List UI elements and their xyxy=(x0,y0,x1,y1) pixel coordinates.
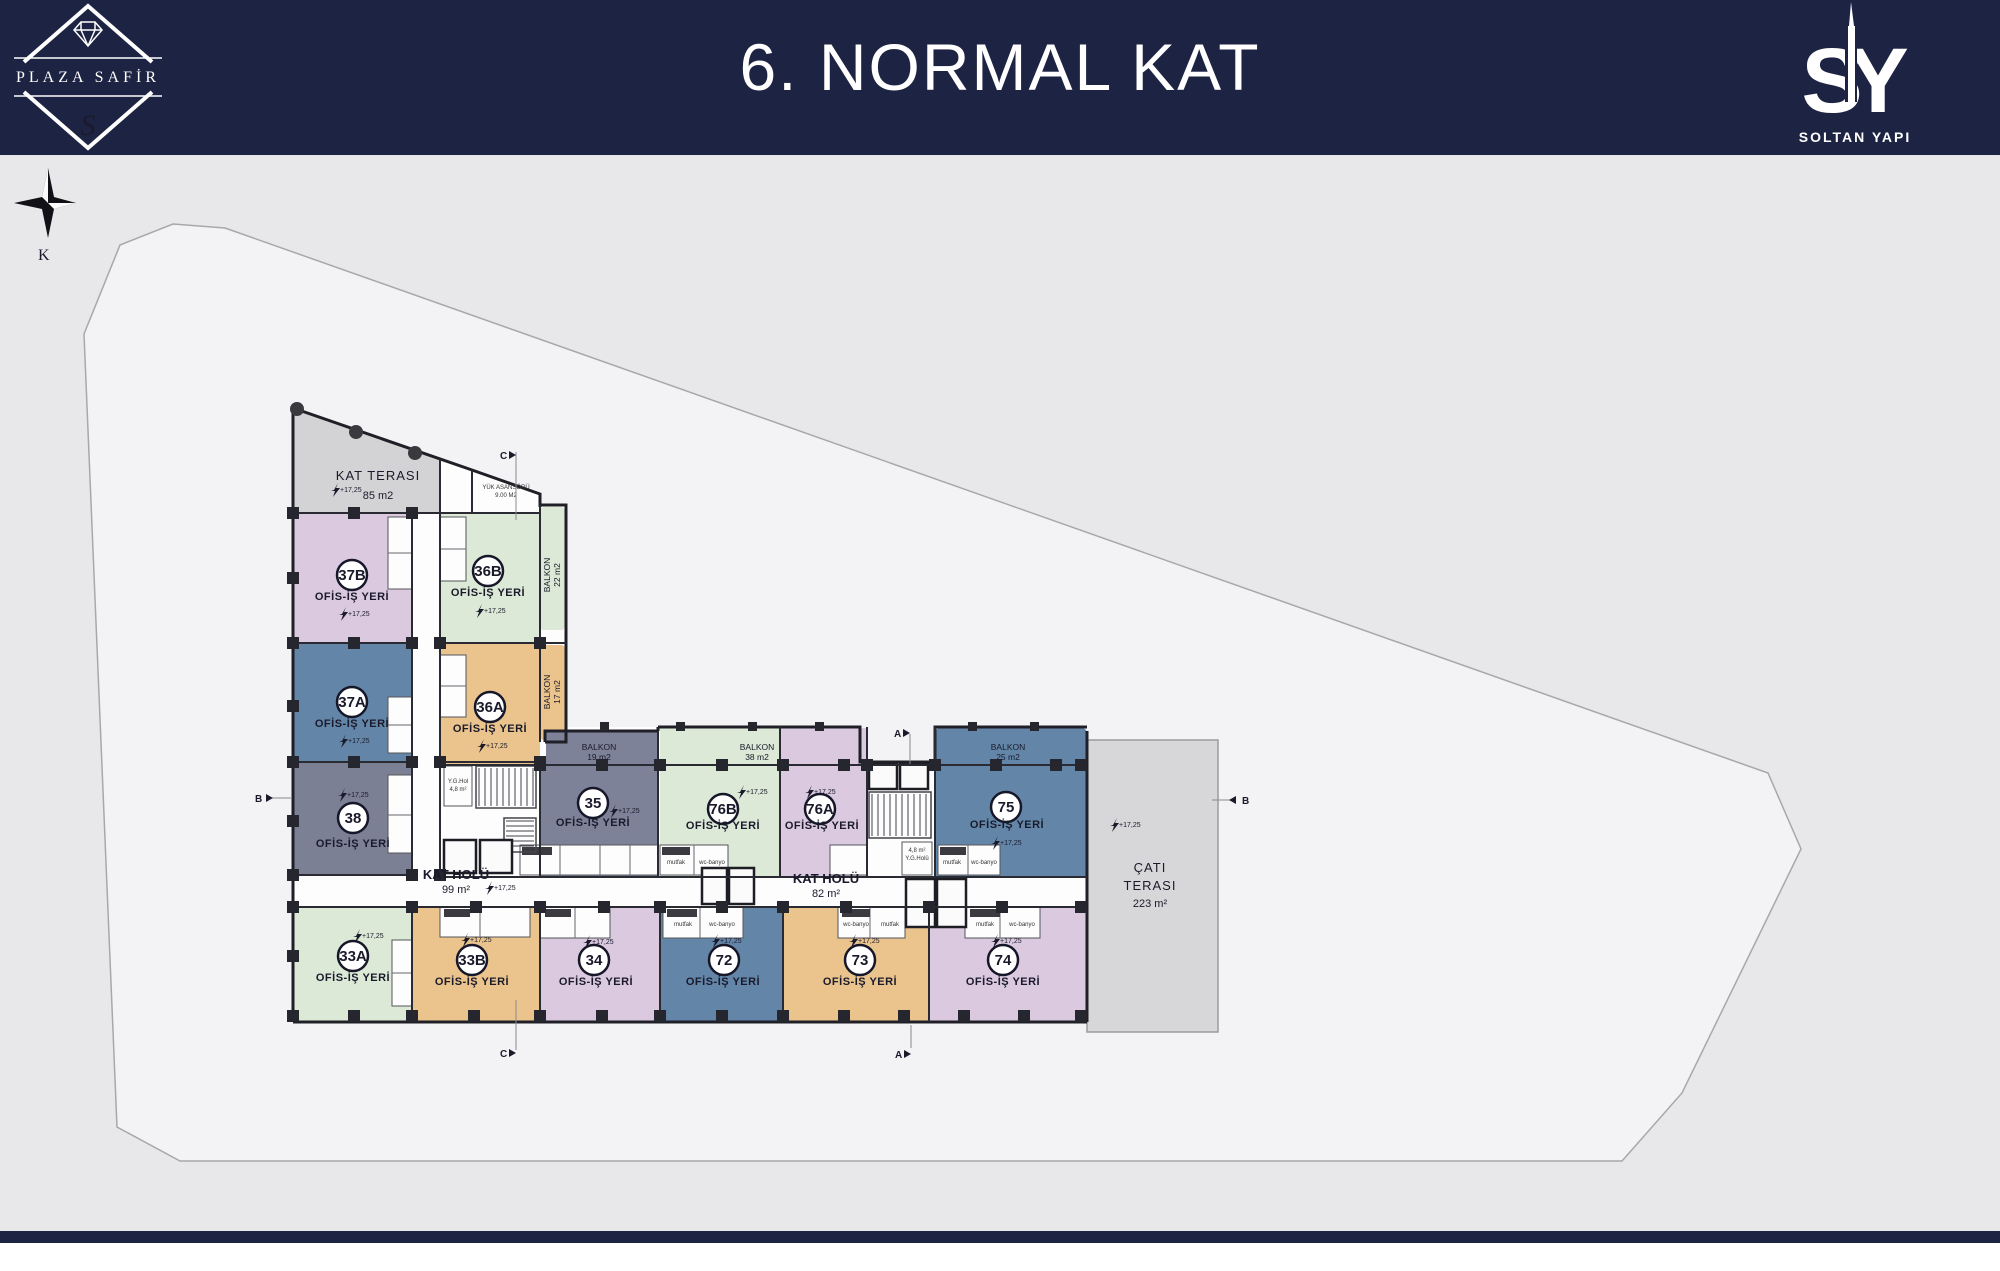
svg-text:KAT HOLÜ: KAT HOLÜ xyxy=(793,871,859,886)
svg-text:wc-banyo: wc-banyo xyxy=(708,922,735,928)
svg-text:OFİS-İŞ YERİ: OFİS-İŞ YERİ xyxy=(315,717,389,730)
svg-text:KAT HOLÜ: KAT HOLÜ xyxy=(423,867,489,882)
svg-text:37A: 37A xyxy=(338,694,366,711)
svg-text:9.00 M2: 9.00 M2 xyxy=(495,493,517,499)
brand-left-name: PLAZA SAFİR xyxy=(16,68,160,86)
svg-text:+17,25: +17,25 xyxy=(618,808,640,815)
svg-text:22 m2: 22 m2 xyxy=(552,563,562,587)
svg-text:wc-banyo: wc-banyo xyxy=(698,860,725,866)
svg-text:OFİS-İŞ YERİ: OFİS-İŞ YERİ xyxy=(316,837,390,850)
north-label: K xyxy=(38,247,50,264)
svg-text:BALKON: BALKON xyxy=(740,742,775,752)
svg-text:73: 73 xyxy=(852,952,869,969)
svg-text:mutfak: mutfak xyxy=(881,922,900,928)
svg-text:34: 34 xyxy=(586,952,603,969)
svg-text:mutfak: mutfak xyxy=(943,860,962,866)
svg-text:+17,25: +17,25 xyxy=(348,738,370,745)
svg-text:+17,25: +17,25 xyxy=(746,789,768,796)
svg-text:OFİS-İŞ YERİ: OFİS-İŞ YERİ xyxy=(785,819,859,832)
svg-text:+17,25: +17,25 xyxy=(1000,840,1022,847)
svg-text:33A: 33A xyxy=(339,948,367,965)
svg-text:Y.G.Hol: Y.G.Hol xyxy=(448,779,468,785)
svg-text:OFİS-İŞ YERİ: OFİS-İŞ YERİ xyxy=(686,975,760,988)
svg-text:wc-banyo: wc-banyo xyxy=(970,860,997,866)
svg-text:BALKON: BALKON xyxy=(542,675,552,710)
svg-text:C: C xyxy=(500,451,507,462)
svg-text:82 m²: 82 m² xyxy=(812,888,840,900)
svg-text:OFİS-İŞ YERİ: OFİS-İŞ YERİ xyxy=(823,975,897,988)
svg-text:38 m2: 38 m2 xyxy=(745,752,769,762)
svg-text:+17,25: +17,25 xyxy=(484,608,506,615)
svg-text:OFİS-İŞ YERİ: OFİS-İŞ YERİ xyxy=(315,590,389,603)
svg-text:OFİS-İŞ YERİ: OFİS-İŞ YERİ xyxy=(451,586,525,599)
svg-text:75: 75 xyxy=(998,799,1015,816)
svg-text:37B: 37B xyxy=(338,567,366,584)
svg-text:mutfak: mutfak xyxy=(674,922,693,928)
svg-text:+17,25: +17,25 xyxy=(470,937,492,944)
svg-text:76B: 76B xyxy=(709,801,737,818)
svg-text:85 m2: 85 m2 xyxy=(363,490,394,502)
svg-text:+17,25: +17,25 xyxy=(348,611,370,618)
svg-text:+17,25: +17,25 xyxy=(340,487,362,494)
svg-text:38: 38 xyxy=(345,810,362,827)
svg-text:OFİS-İŞ YERİ: OFİS-İŞ YERİ xyxy=(686,819,760,832)
svg-text:35: 35 xyxy=(585,795,602,812)
svg-text:OFİS-İŞ YERİ: OFİS-İŞ YERİ xyxy=(453,722,527,735)
footer-bar xyxy=(0,1231,2000,1243)
svg-text:OFİS-İŞ YERİ: OFİS-İŞ YERİ xyxy=(556,816,630,829)
svg-text:OFİS-İŞ YERİ: OFİS-İŞ YERİ xyxy=(970,818,1044,831)
svg-text:wc-banyo: wc-banyo xyxy=(1008,922,1035,928)
svg-text:KAT TERASI: KAT TERASI xyxy=(336,468,420,483)
svg-text:76A: 76A xyxy=(806,801,834,818)
page-title: 6. NORMAL KAT xyxy=(739,30,1260,104)
svg-text:+17,25: +17,25 xyxy=(486,743,508,750)
svg-text:A: A xyxy=(894,729,901,740)
svg-text:mutfak: mutfak xyxy=(667,860,686,866)
floor-plan-page: KAT TERASI 85 m2 +17,25 ÇATI TERASI 223 … xyxy=(0,0,2000,1271)
svg-text:36B: 36B xyxy=(474,563,502,580)
svg-text:A: A xyxy=(895,1050,902,1061)
svg-text:99 m²: 99 m² xyxy=(442,884,470,896)
svg-text:B: B xyxy=(255,794,262,805)
svg-text:4,8 m²: 4,8 m² xyxy=(449,787,466,793)
svg-text:33B: 33B xyxy=(458,952,486,969)
svg-text:Y.G.Holü: Y.G.Holü xyxy=(905,856,929,862)
svg-text:4,8 m²: 4,8 m² xyxy=(908,848,925,854)
svg-text:74: 74 xyxy=(995,952,1012,969)
svg-text:36A: 36A xyxy=(476,699,504,716)
balcony-38b-area xyxy=(780,728,867,765)
svg-text:BALKON: BALKON xyxy=(991,742,1026,752)
svg-text:BALKON: BALKON xyxy=(542,558,552,593)
svg-text:wc-banyo: wc-banyo xyxy=(842,922,869,928)
svg-text:OFİS-İŞ YERİ: OFİS-İŞ YERİ xyxy=(435,975,509,988)
plan-canvas: KAT TERASI 85 m2 +17,25 ÇATI TERASI 223 … xyxy=(0,0,2000,1271)
svg-text:BALKON: BALKON xyxy=(582,742,617,752)
bottom-margin xyxy=(0,1243,2000,1271)
svg-text:72: 72 xyxy=(716,952,733,969)
svg-text:223 m²: 223 m² xyxy=(1133,898,1168,910)
svg-text:YÜK ASANSÖRÜ: YÜK ASANSÖRÜ xyxy=(482,484,529,491)
header: 6. NORMAL KAT PLAZA SAFİR S S Y SOLTAN Y… xyxy=(0,0,2000,155)
svg-text:19 m2: 19 m2 xyxy=(587,752,611,762)
svg-text:17 m2: 17 m2 xyxy=(552,680,562,704)
svg-text:OFİS-İŞ YERİ: OFİS-İŞ YERİ xyxy=(966,975,1040,988)
svg-text:25 m2: 25 m2 xyxy=(996,752,1020,762)
svg-text:OFİS-İŞ YERİ: OFİS-İŞ YERİ xyxy=(559,975,633,988)
svg-text:+17,25: +17,25 xyxy=(362,933,384,940)
svg-text:OFİS-İŞ YERİ: OFİS-İŞ YERİ xyxy=(316,971,390,984)
svg-text:mutfak: mutfak xyxy=(976,922,995,928)
svg-text:ÇATI: ÇATI xyxy=(1134,860,1167,875)
svg-text:+17,25: +17,25 xyxy=(494,885,516,892)
svg-text:+17,25: +17,25 xyxy=(1119,822,1141,829)
svg-text:B: B xyxy=(1242,796,1249,807)
svg-text:+17,25: +17,25 xyxy=(347,792,369,799)
svg-text:C: C xyxy=(500,1049,507,1060)
brand-left-monogram: S xyxy=(81,109,96,142)
svg-text:TERASI: TERASI xyxy=(1124,878,1177,893)
brand-right-name: SOLTAN YAPI xyxy=(1799,129,1912,145)
